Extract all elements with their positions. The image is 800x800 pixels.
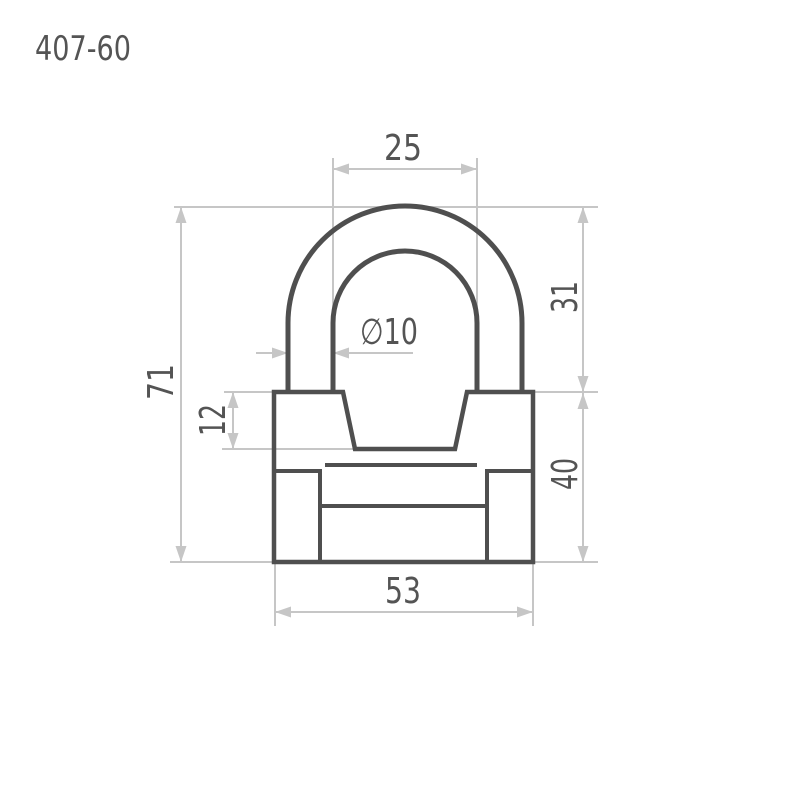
drawing-title: 407-60 <box>35 29 131 69</box>
drawing-canvas: 407-60 25 71 31 ∅10 12 40 53 <box>0 0 800 800</box>
arrowhead-down-icon <box>578 546 589 562</box>
arrowhead-up-icon <box>578 207 589 223</box>
arrowhead-right-icon <box>517 607 533 618</box>
body-outline <box>274 392 533 562</box>
arrowhead-down-icon <box>578 376 589 392</box>
padlock-dimension-drawing: 407-60 25 71 31 ∅10 12 40 53 <box>0 0 800 800</box>
padlock-part <box>274 206 533 562</box>
label-shackle-inner-width: 25 <box>384 128 422 169</box>
label-body-step-depth: 12 <box>193 404 234 436</box>
dimension-body-step-depth <box>222 392 353 449</box>
arrowhead-up-icon <box>578 393 589 409</box>
label-overall-height: 71 <box>141 364 182 400</box>
label-shackle-height: 31 <box>545 281 586 313</box>
arrowhead-right-icon <box>461 164 477 175</box>
dimension-overall-height <box>170 207 276 562</box>
arrowhead-left-icon <box>333 164 349 175</box>
arrowhead-down-icon <box>176 546 187 562</box>
body-left-shoulder <box>274 471 320 562</box>
body-right-shoulder <box>487 471 533 562</box>
label-body-width: 53 <box>385 571 421 612</box>
label-body-height: 40 <box>545 458 586 490</box>
shackle-outer-contour <box>288 206 522 392</box>
arrowhead-left-icon <box>275 607 291 618</box>
label-shackle-diameter: ∅10 <box>360 312 418 353</box>
arrowhead-up-icon <box>176 207 187 223</box>
